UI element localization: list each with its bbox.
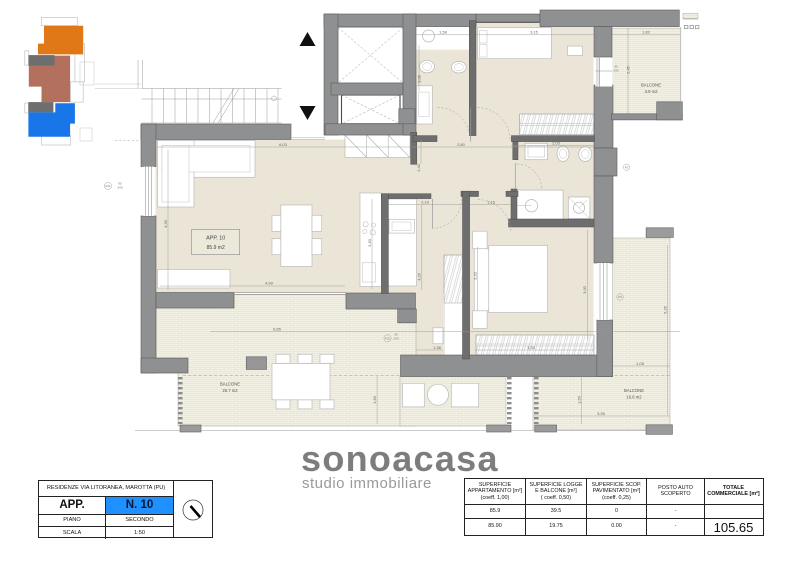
svg-text:BALCONE: BALCONE <box>220 382 240 387</box>
svg-text:3,00: 3,00 <box>582 285 587 294</box>
svg-text:3.9 m2: 3.9 m2 <box>645 89 658 94</box>
svg-text:BALCONE: BALCONE <box>624 388 644 393</box>
svg-text:240: 240 <box>117 186 122 190</box>
svg-text:6,03: 6,03 <box>279 142 288 147</box>
svg-text:1,40: 1,40 <box>416 163 421 172</box>
svg-text:APP. 10: APP. 10 <box>206 236 225 242</box>
svg-text:3,15: 3,15 <box>530 30 539 35</box>
svg-text:2,80: 2,80 <box>457 142 466 147</box>
svg-text:4,30: 4,30 <box>163 219 168 228</box>
svg-text:1,58: 1,58 <box>439 30 448 35</box>
svg-text:2,60: 2,60 <box>367 238 372 247</box>
svg-text:85.9 m2: 85.9 m2 <box>207 245 225 251</box>
svg-text:3,30: 3,30 <box>527 345 536 350</box>
svg-text:1,50: 1,50 <box>576 395 581 404</box>
svg-text:5,25: 5,25 <box>662 305 667 314</box>
svg-text:1,15: 1,15 <box>487 199 496 204</box>
svg-text:1,08: 1,08 <box>636 361 645 366</box>
svg-text:240: 240 <box>613 69 618 73</box>
svg-text:4,26: 4,26 <box>417 272 422 281</box>
svg-text:25.7 m2: 25.7 m2 <box>222 388 238 393</box>
svg-text:2,45: 2,45 <box>625 65 630 74</box>
svg-text:P2: P2 <box>625 165 629 169</box>
svg-text:4,99: 4,99 <box>265 281 274 286</box>
svg-text:F01: F01 <box>385 337 391 341</box>
svg-text:6,85: 6,85 <box>273 327 282 332</box>
svg-text:2,03: 2,03 <box>552 140 561 145</box>
svg-text:240: 240 <box>393 337 398 341</box>
svg-text:F01: F01 <box>105 184 111 188</box>
svg-text:1,82: 1,82 <box>642 30 651 35</box>
svg-text:3,20: 3,20 <box>472 271 477 280</box>
svg-text:16.6 m2: 16.6 m2 <box>626 395 642 400</box>
svg-text:P3: P3 <box>618 295 622 299</box>
svg-text:1,38: 1,38 <box>433 345 442 350</box>
svg-text:3,08: 3,08 <box>416 74 421 83</box>
svg-text:1,50: 1,50 <box>372 395 377 404</box>
svg-text:2,19: 2,19 <box>421 199 430 204</box>
svg-text:3,35: 3,35 <box>597 411 606 416</box>
svg-text:BALCONE: BALCONE <box>641 83 661 88</box>
